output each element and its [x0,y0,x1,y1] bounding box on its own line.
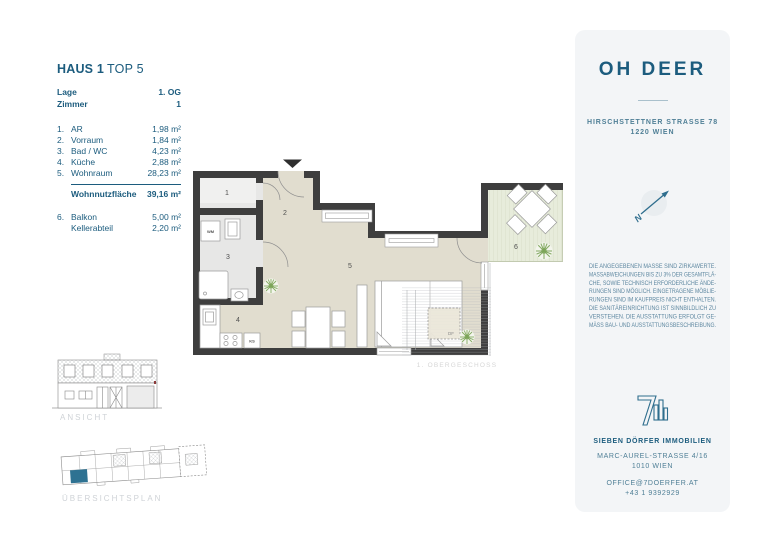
floor-plan: 1 2 3 4 5 6 WM KS DF 1. OBERGESCHOSS [185,150,565,380]
shelf [357,285,367,347]
company-address: MARC-AUREL-STRASSE 4/16 1010 WIEN [575,452,730,472]
company-contact: OFFICE@7DOERFER.AT +43 1 9392929 [575,479,730,499]
room-label-6: 6 [514,244,518,251]
company-email: OFFICE@7DOERFER.AT [575,479,730,489]
room-row: 3.Bad / WC4,23 m² [57,146,181,157]
svg-text:MÄSS BAU- UND AUSSTATTUNGSBESC: MÄSS BAU- UND AUSSTATTUNGSBESCHREIBUNG. [589,322,716,329]
brand-panel: OH DEER HIRSCHSTETTNER STRASSE 78 1220 W… [575,30,730,512]
room-label-5: 5 [348,263,352,270]
project-address: HIRSCHSTETTNER STRASSE 78 1220 WIEN [575,118,730,138]
dining-table [306,307,330,348]
svg-text:RUNGEN SIND MÖGLICH. EINGETRAG: RUNGEN SIND MÖGLICH. EINGETRAGENE MÖBLIE… [589,288,716,295]
meta-row-lage: Lage1. OG [57,86,181,98]
entrance-arrow-icon [283,160,302,169]
chair [292,331,305,347]
unit-info-panel: HAUS 1TOP 5 Lage1. OG Zimmer1 1.AR1,98 m… [57,62,181,234]
extra-row: 6.Balkon5,00 m² [57,212,181,223]
plant-icon [460,330,475,345]
company-name: SIEBEN DÖRFER IMMOBILIEN [575,438,730,445]
room-label-3: 3 [226,254,230,261]
room-row: 5.Wohnraum28,23 m² [57,168,181,179]
room-row: 4.Küche2,88 m² [57,157,181,168]
svg-text:RUNGEN SIND IM KAUFPREIS NICHT: RUNGEN SIND IM KAUFPREIS NICHT ENTHALTEN… [589,297,716,304]
roof-window-outline [428,308,460,339]
company-phone: +43 1 9392929 [575,489,730,499]
ks-label: KS [249,339,255,344]
plan-caption: 1. OBERGESCHOSS [417,362,498,369]
brand-name: OH DEER [575,59,730,81]
unit-meta: Lage1. OG Zimmer1 [57,86,181,110]
meta-label: Zimmer [57,98,88,110]
address-line: HIRSCHSTETTNER STRASSE 78 [575,118,730,128]
extra-row: Kellerabteil2,20 m² [57,223,181,234]
meta-label: Lage [57,86,77,98]
chair [332,311,345,327]
meta-value: 1 [176,98,181,110]
company-address-line: 1010 WIEN [575,462,730,472]
plant-icon [264,279,279,294]
company-address-line: MARC-AUREL-STRASSE 4/16 [575,452,730,462]
north-compass-icon: N [630,184,676,226]
elevation-caption: ANSICHT [60,413,109,422]
toilet [231,289,248,301]
seven-doerfer-logo [635,389,671,429]
highlighted-unit [70,469,88,483]
stove [220,333,242,348]
chair [292,311,305,327]
df-label: DF [448,331,454,336]
siteplan-drawing: ÜBERSICHTSPLAN [52,438,222,506]
floorplan-page: HAUS 1TOP 5 Lage1. OG Zimmer1 1.AR1,98 m… [0,0,770,551]
svg-text:MASSABWEICHUNGEN BIS ZU 3% DER: MASSABWEICHUNGEN BIS ZU 3% DER GESAMTFLÄ… [589,271,716,278]
title-top: TOP 5 [107,62,144,76]
room-list: 1.AR1,98 m² 2.Vorraum1,84 m² 3.Bad / WC4… [57,124,181,179]
garage-door [127,386,154,408]
divider [638,100,668,101]
extra-areas: 6.Balkon5,00 m² Kellerabteil2,20 m² [57,212,181,234]
north-label: N [632,212,644,224]
total-area: Wohnnutzfläche39,16 m² [71,184,181,199]
room-row: 1.AR1,98 m² [57,124,181,135]
room-label-1: 1 [225,190,229,197]
svg-text:DIE ANGEGEBENEN MASSE SIND ZIR: DIE ANGEGEBENEN MASSE SIND ZIRKAWERTE. [589,263,716,270]
page-title: HAUS 1TOP 5 [57,62,181,76]
chair [332,331,345,347]
title-haus: HAUS 1 [57,62,104,76]
svg-text:CHE, SOWIE TECHNISCH ERFORDERL: CHE, SOWIE TECHNISCH ERFORDERLICHE ÄNDE- [589,280,716,287]
total-row: Wohnnutzfläche39,16 m² [71,189,181,199]
svg-text:VERSTEHEN. DIE AUSSTATTUNG ERF: VERSTEHEN. DIE AUSSTATTUNG ERFOLGT GE- [589,313,716,320]
shower [199,271,228,299]
wm-label: WM [207,229,215,234]
siteplan-caption: ÜBERSICHTSPLAN [62,494,162,503]
room-label-4: 4 [236,317,240,324]
plant-icon [535,242,552,259]
svg-text:DIE SANITÄREINRICHTUNG IST SIN: DIE SANITÄREINRICHTUNG IST SINNBILDLICH … [589,305,716,312]
address-line: 1220 WIEN [575,128,730,138]
meta-row-zimmer: Zimmer1 [57,98,181,110]
meta-value: 1. OG [158,86,181,98]
disclaimer-text: DIE ANGEGEBENEN MASSE SIND ZIRKAWERTE. M… [589,262,716,332]
room-row: 2.Vorraum1,84 m² [57,135,181,146]
room-label-2: 2 [283,210,287,217]
elevation-drawing: ANSICHT [50,350,165,425]
